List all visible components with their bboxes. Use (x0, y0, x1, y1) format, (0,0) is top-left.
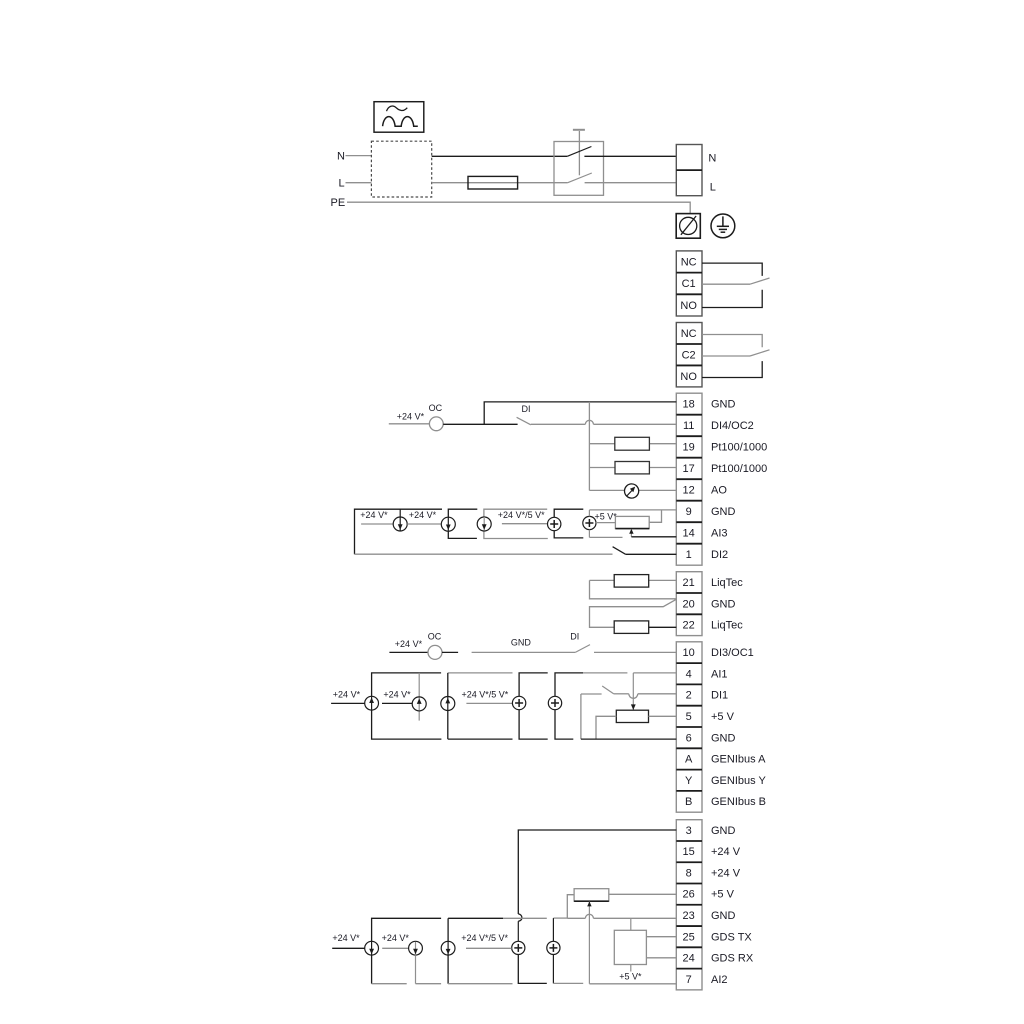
svg-text:DI: DI (570, 631, 579, 641)
svg-text:+24 V*/5 V*: +24 V*/5 V* (498, 510, 545, 520)
svg-text:NO: NO (680, 300, 697, 312)
svg-text:NC: NC (681, 328, 697, 340)
svg-text:GND: GND (711, 910, 736, 922)
svg-text:L: L (339, 178, 345, 190)
svg-text:AO: AO (711, 485, 727, 497)
svg-text:10: 10 (683, 647, 695, 659)
svg-text:+24 V*/5 V*: +24 V*/5 V* (462, 689, 509, 699)
svg-text:GENIbus Y: GENIbus Y (711, 775, 766, 787)
svg-text:21: 21 (683, 577, 695, 589)
svg-text:+24 V*: +24 V* (360, 510, 388, 520)
svg-text:N: N (337, 151, 345, 163)
svg-text:NC: NC (681, 256, 697, 268)
svg-text:OC: OC (429, 403, 443, 413)
svg-text:11: 11 (683, 420, 694, 432)
svg-text:3: 3 (686, 825, 692, 837)
svg-text:AI1: AI1 (711, 668, 728, 680)
svg-text:6: 6 (686, 732, 692, 744)
svg-text:25: 25 (683, 931, 695, 943)
svg-text:DI1: DI1 (711, 690, 728, 702)
svg-text:LiqTec: LiqTec (711, 577, 743, 589)
svg-text:+24 V*: +24 V* (383, 689, 411, 699)
svg-text:18: 18 (683, 399, 695, 411)
svg-text:+24 V*: +24 V* (332, 933, 360, 943)
svg-text:+24 V: +24 V (711, 867, 741, 879)
svg-text:DI4/OC2: DI4/OC2 (711, 420, 754, 432)
svg-text:GND: GND (711, 598, 736, 610)
svg-text:N: N (708, 153, 716, 165)
svg-text:+24 V*: +24 V* (409, 510, 437, 520)
svg-text:+24 V*: +24 V* (397, 411, 425, 421)
svg-text:+24 V: +24 V (711, 846, 741, 858)
svg-text:GENIbus A: GENIbus A (711, 754, 766, 766)
svg-text:+5 V: +5 V (711, 889, 735, 901)
svg-text:DI2: DI2 (711, 549, 728, 561)
svg-text:5: 5 (686, 711, 692, 723)
svg-text:26: 26 (683, 889, 695, 901)
svg-text:DI: DI (522, 404, 531, 414)
svg-text:AI2: AI2 (711, 974, 728, 986)
svg-text:C2: C2 (682, 349, 696, 361)
svg-text:GND: GND (511, 638, 532, 648)
svg-text:22: 22 (683, 620, 695, 632)
svg-text:GDS RX: GDS RX (711, 953, 754, 965)
svg-text:12: 12 (683, 485, 695, 497)
svg-text:DI3/OC1: DI3/OC1 (711, 647, 754, 659)
svg-text:C1: C1 (682, 278, 696, 290)
svg-text:LiqTec: LiqTec (711, 620, 743, 632)
svg-text:23: 23 (683, 910, 695, 922)
svg-text:GENIbus B: GENIbus B (711, 796, 766, 808)
svg-text:+24 V*: +24 V* (395, 639, 423, 649)
svg-text:+5 V: +5 V (711, 711, 735, 723)
svg-text:A: A (685, 754, 693, 766)
svg-text:GND: GND (711, 825, 736, 837)
svg-text:7: 7 (686, 974, 692, 986)
svg-text:15: 15 (683, 846, 695, 858)
svg-text:Pt100/1000: Pt100/1000 (711, 463, 767, 475)
svg-text:+24 V*: +24 V* (333, 689, 361, 699)
svg-text:17: 17 (683, 463, 695, 475)
svg-text:GND: GND (711, 506, 736, 518)
svg-text:NO: NO (680, 371, 697, 383)
svg-text:24: 24 (683, 953, 695, 965)
svg-text:Y: Y (685, 775, 693, 787)
svg-text:19: 19 (683, 442, 695, 454)
svg-text:2: 2 (686, 690, 692, 702)
svg-text:AI3: AI3 (711, 528, 728, 540)
svg-text:14: 14 (683, 528, 695, 540)
svg-text:Pt100/1000: Pt100/1000 (711, 442, 767, 454)
svg-text:1: 1 (686, 549, 692, 561)
svg-text:B: B (685, 796, 692, 808)
svg-text:GND: GND (711, 732, 736, 744)
svg-text:+5 V*: +5 V* (595, 512, 618, 522)
svg-text:+5 V*: +5 V* (619, 972, 642, 982)
svg-text:GND: GND (711, 399, 736, 411)
svg-text:GDS TX: GDS TX (711, 931, 752, 943)
svg-text:9: 9 (686, 506, 692, 518)
svg-text:4: 4 (686, 668, 692, 680)
svg-text:+24 V*/5 V*: +24 V*/5 V* (461, 933, 508, 943)
svg-text:20: 20 (683, 598, 695, 610)
svg-text:OC: OC (428, 631, 442, 641)
svg-text:+24 V*: +24 V* (382, 933, 410, 943)
svg-text:L: L (710, 181, 716, 193)
svg-text:PE: PE (331, 197, 346, 209)
svg-text:8: 8 (686, 867, 692, 879)
